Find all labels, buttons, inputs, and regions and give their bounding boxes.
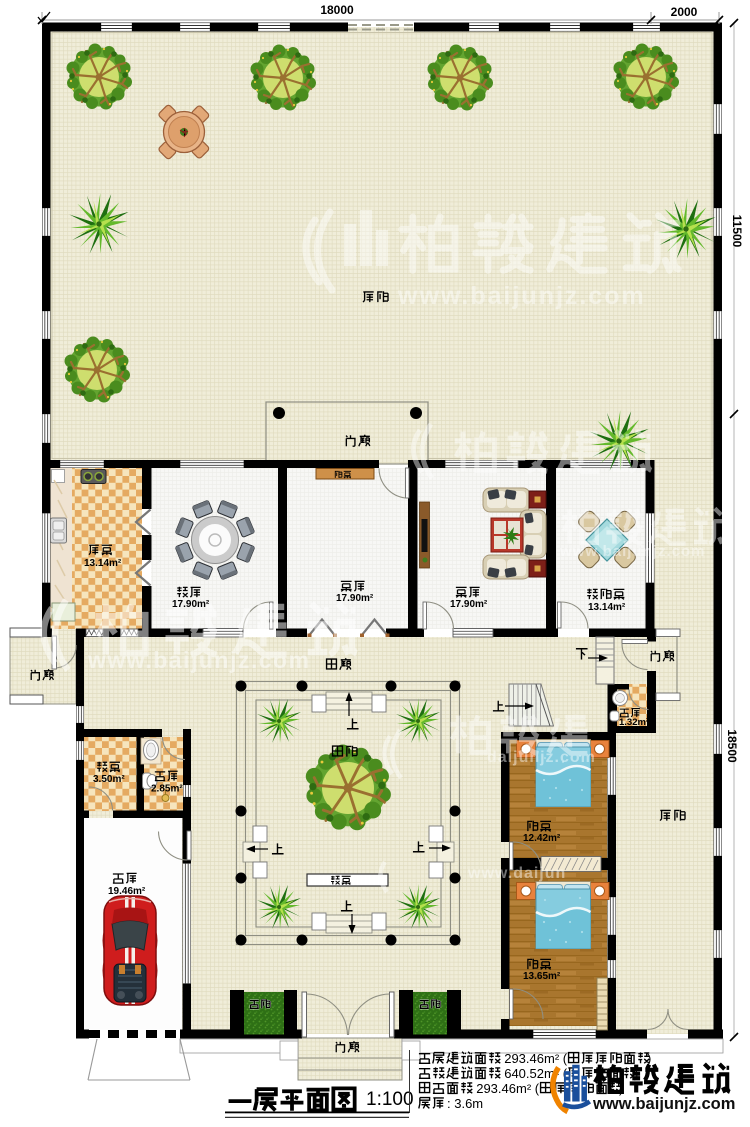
svg-text:daijunjz.com: daijunjz.com [487, 749, 596, 766]
svg-text:1.32m²: 1.32m² [619, 717, 649, 728]
svg-text:12.42m²: 12.42m² [523, 833, 561, 844]
svg-text:19.46m²: 19.46m² [108, 886, 146, 897]
svg-text:13.65m²: 13.65m² [523, 971, 561, 982]
svg-text:www.baijunjz.com: www.baijunjz.com [87, 647, 311, 673]
svg-text:www.baijunjz.com: www.baijunjz.com [397, 282, 646, 310]
svg-text:3.50m²: 3.50m² [93, 774, 125, 785]
svg-text:17.90m²: 17.90m² [336, 593, 374, 604]
svg-text:: 293.46m² (: : 293.46m² ( [497, 1051, 568, 1066]
svg-text:www.baijunjz.com: www.baijunjz.com [559, 543, 705, 560]
svg-text:13.14m²: 13.14m² [588, 602, 626, 613]
svg-text:18000: 18000 [320, 3, 354, 17]
svg-text:13.14m²: 13.14m² [84, 558, 122, 569]
svg-text:: 3.6m: : 3.6m [447, 1096, 483, 1111]
svg-text:www.daijun: www.daijun [467, 865, 566, 882]
svg-text:1:100: 1:100 [366, 1089, 414, 1110]
svg-text:: 293.46m² (: : 293.46m² ( [469, 1081, 540, 1096]
svg-text:2.85m²: 2.85m² [151, 784, 183, 795]
svg-text:17.90m²: 17.90m² [172, 599, 210, 610]
svg-text:www.baijunjz.com: www.baijunjz.com [592, 1095, 735, 1113]
svg-text:2000: 2000 [671, 5, 698, 19]
svg-text:11500: 11500 [730, 215, 744, 248]
svg-text:18500: 18500 [725, 729, 739, 763]
svg-text:17.90m²: 17.90m² [450, 599, 488, 610]
svg-text:): ) [647, 1051, 651, 1066]
